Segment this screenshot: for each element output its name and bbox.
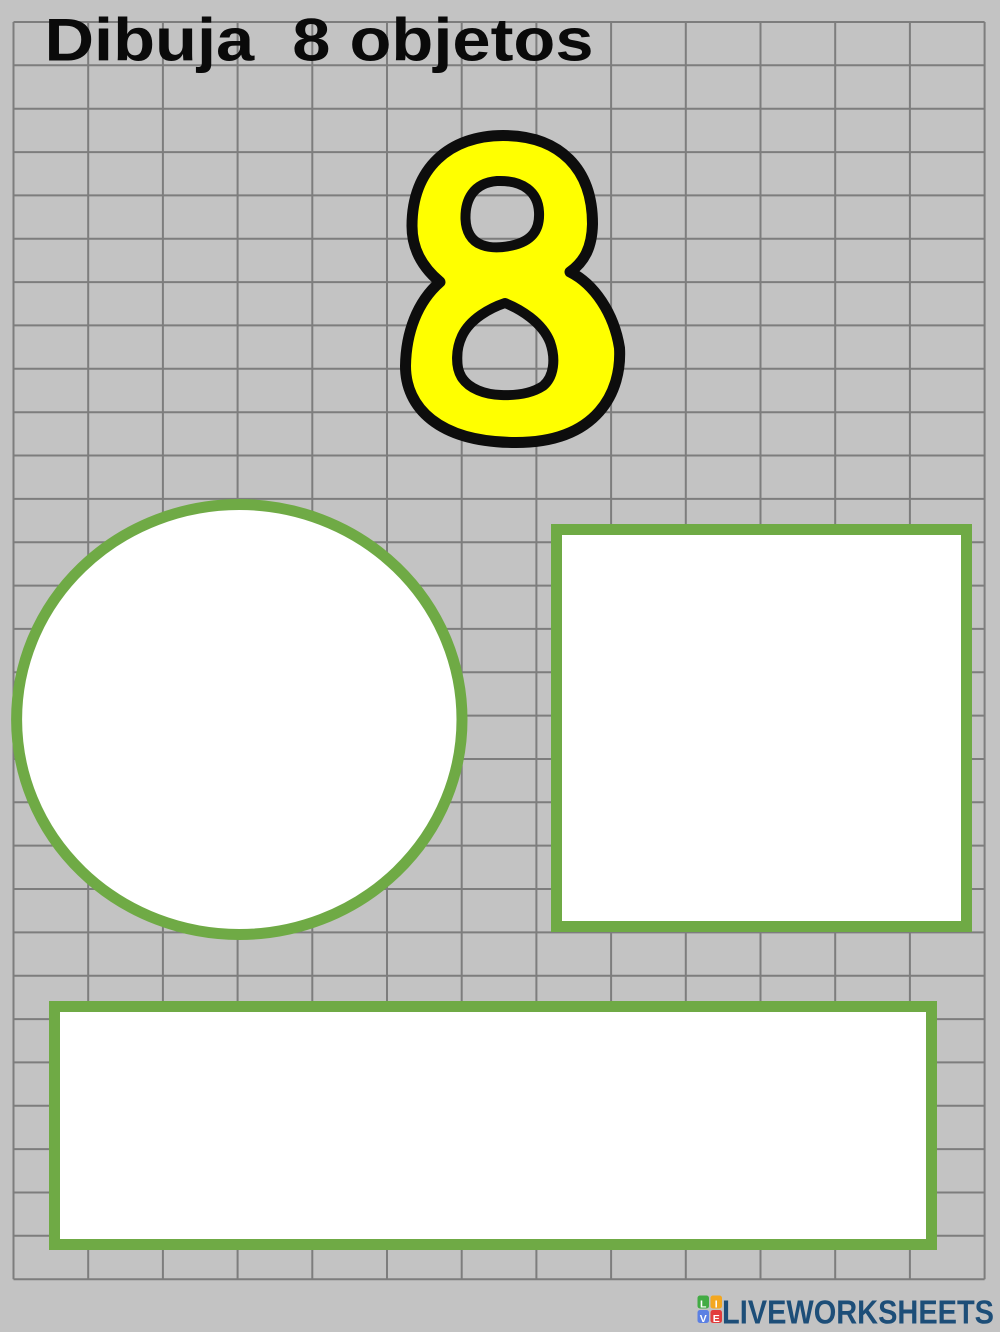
- svg-text:Dibuja 8 objetos: Dibuja 8 objetos: [45, 7, 594, 74]
- svg-text:E: E: [713, 1313, 720, 1325]
- svg-text:I: I: [715, 1298, 718, 1310]
- svg-text:V: V: [700, 1313, 707, 1325]
- svg-text:LIVEWORKSHEETS: LIVEWORKSHEETS: [722, 1294, 994, 1331]
- svg-text:L: L: [700, 1298, 707, 1310]
